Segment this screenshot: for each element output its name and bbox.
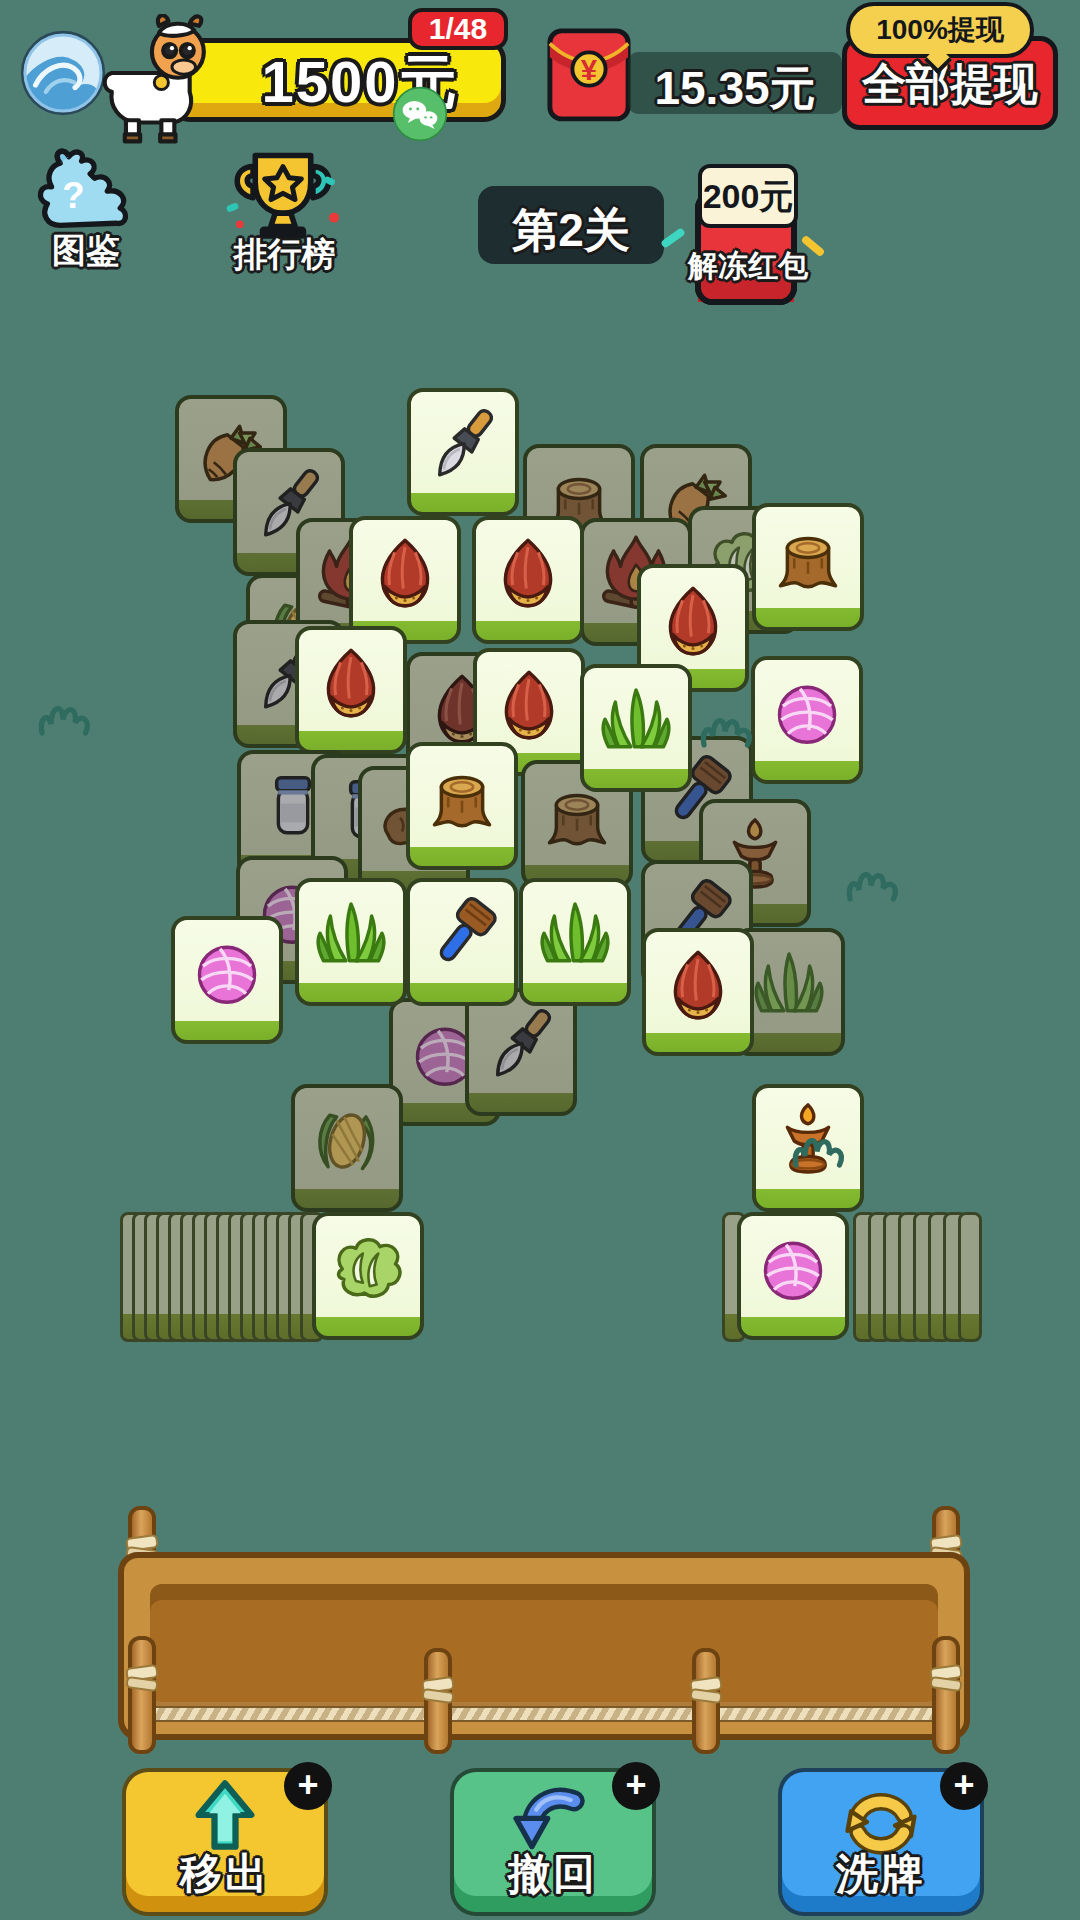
tile-chestnut[interactable]	[349, 516, 461, 644]
facedown-tile	[958, 1212, 982, 1342]
move-out-arrow-icon	[181, 1778, 269, 1854]
tile-yarn[interactable]	[737, 1212, 849, 1340]
plus-badge[interactable]: +	[940, 1762, 988, 1810]
tile-yarn[interactable]	[171, 916, 283, 1044]
tile-brush2[interactable]	[406, 878, 518, 1006]
move-out-label: 移出	[126, 1846, 324, 1902]
grass-doodle-icon	[36, 694, 96, 734]
tile-chestnut[interactable]	[642, 928, 754, 1056]
unfreeze-amount-badge: 200元	[698, 164, 798, 228]
grass-doodle-icon	[790, 1126, 850, 1166]
shuffle-label: 洗牌	[782, 1846, 980, 1902]
shuffle-button[interactable]: 洗牌 +	[778, 1768, 984, 1916]
player-avatar[interactable]	[20, 30, 106, 116]
tile-brush	[465, 988, 577, 1116]
progress-badge: 1/48	[408, 8, 508, 50]
grass-doodle-icon	[698, 706, 758, 746]
tile-chestnut[interactable]	[472, 516, 584, 644]
undo-button[interactable]: 撤回 +	[450, 1768, 656, 1916]
money-amount: 1500元	[210, 44, 510, 122]
leaderboard-label: 排行榜	[212, 232, 357, 278]
tray-slot-area	[150, 1584, 938, 1708]
tile-stump[interactable]	[406, 742, 518, 870]
tray-rope	[130, 1706, 958, 1722]
red-envelope-icon[interactable]: ¥	[545, 26, 633, 118]
tujian-label: 图鉴	[26, 228, 146, 274]
goat-question-icon[interactable]: ?	[28, 146, 146, 240]
tray-post	[424, 1648, 452, 1754]
unfreeze-label: 解冻红包	[662, 246, 834, 287]
tile-grass[interactable]	[580, 664, 692, 792]
grass-doodle-icon	[844, 860, 904, 900]
svg-text:?: ?	[62, 175, 84, 216]
shuffle-arrows-icon	[837, 1778, 925, 1854]
undo-label: 撤回	[454, 1846, 652, 1902]
game-screen: 1500元 1/48	[0, 0, 1080, 1920]
tile-grass[interactable]	[295, 878, 407, 1006]
plus-badge[interactable]: +	[284, 1762, 332, 1810]
svg-text:¥: ¥	[581, 53, 598, 86]
tile-cabbage[interactable]	[312, 1212, 424, 1340]
trophy-icon[interactable]	[222, 140, 344, 240]
tray-post	[692, 1648, 720, 1754]
tile-stump[interactable]	[752, 503, 864, 631]
tray-post	[128, 1636, 156, 1754]
tile-brush[interactable]	[407, 388, 519, 516]
goat-mascot-icon	[100, 14, 218, 142]
tile-chestnut[interactable]	[295, 626, 407, 754]
tray-post	[932, 1636, 960, 1754]
withdraw-button-label: 全部提现	[847, 55, 1053, 114]
move-out-button[interactable]: 移出 +	[122, 1768, 328, 1916]
balance-amount: 15.35元	[628, 58, 842, 120]
undo-arrow-icon	[509, 1778, 597, 1854]
wave-avatar-icon	[20, 102, 106, 119]
tile-corn	[291, 1084, 403, 1212]
tile-grass[interactable]	[519, 878, 631, 1006]
tile-yarn[interactable]	[751, 656, 863, 784]
plus-badge[interactable]: +	[612, 1762, 660, 1810]
wechat-icon[interactable]	[392, 86, 448, 142]
level-label: 第2关	[478, 200, 664, 262]
